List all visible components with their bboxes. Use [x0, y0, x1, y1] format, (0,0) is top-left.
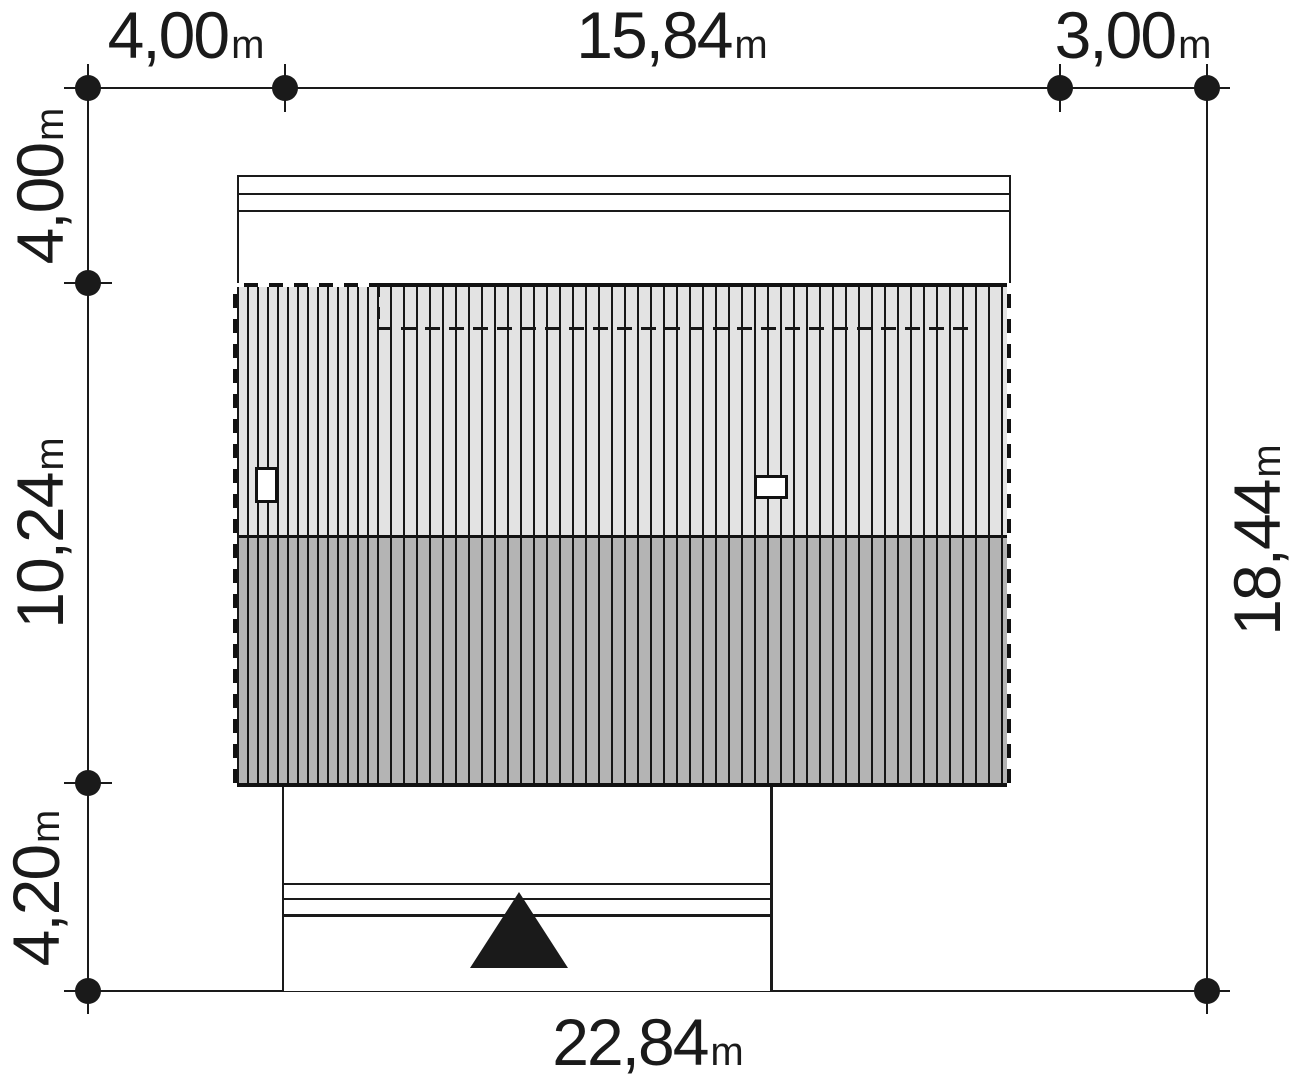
dim-value: 22,84	[552, 1005, 707, 1079]
dim-value: 4,00	[108, 0, 228, 72]
dim-unit: m	[24, 810, 68, 843]
dim-label-left-middle: 10,24m	[5, 383, 75, 683]
dim-label-top-right: 3,00m	[983, 0, 1283, 70]
dimension-dot	[1194, 75, 1220, 101]
dimension-dot	[75, 978, 101, 1004]
dim-unit: m	[28, 108, 72, 141]
dim-value: 3,00	[1055, 0, 1175, 72]
dim-unit: m	[28, 437, 72, 470]
plot-boundary-right	[1206, 64, 1208, 1014]
dim-unit: m	[1245, 444, 1289, 477]
dim-label-top-left: 4,00m	[36, 0, 336, 70]
hidden-wall-dashed-line-left	[233, 283, 237, 787]
dim-value: 4,00	[3, 144, 77, 264]
roof-hatch-left-panel	[237, 287, 377, 783]
dimension-dot	[75, 75, 101, 101]
dim-value: 10,24	[3, 474, 77, 629]
hidden-wall-dashed-line-right	[1007, 283, 1011, 787]
dim-value: 18,44	[1220, 481, 1294, 636]
dim-value: 15,84	[576, 0, 731, 72]
dim-label-left-bottom: 4,20m	[1, 738, 71, 1038]
dimension-dot	[1194, 978, 1220, 1004]
dim-unit: m	[710, 1030, 743, 1074]
building-terrace-strip	[237, 175, 1011, 283]
chimney-right	[754, 475, 788, 499]
entrance-arrow-triangle	[470, 892, 568, 968]
dim-label-left-top: 4,00m	[5, 36, 75, 336]
dim-unit: m	[1178, 23, 1211, 67]
terrace-line	[239, 193, 1009, 195]
roof-hatch-right-panel	[377, 287, 1007, 783]
driveway	[282, 787, 773, 991]
hidden-wall-dashed-line-horizontal	[377, 327, 968, 330]
dimension-tick	[284, 64, 286, 112]
driveway-line	[284, 883, 770, 885]
dim-value: 4,20	[0, 846, 73, 966]
terrace-line	[239, 210, 1009, 212]
dim-unit: m	[734, 23, 767, 67]
dim-label-right: 18,44m	[1222, 390, 1292, 690]
plot-boundary-left	[87, 64, 89, 1014]
building-roof	[233, 283, 1011, 787]
dim-unit: m	[231, 23, 264, 67]
chimney-left	[255, 467, 278, 503]
dim-label-bottom: 22,84m	[498, 1007, 798, 1077]
site-plan-drawing: 4,00m 15,84m 3,00m 4,00m 10,24m 4,20m 18…	[0, 0, 1296, 1080]
hidden-wall-dashed-line-top	[233, 283, 381, 287]
dimension-tick	[64, 782, 112, 784]
hidden-wall-dashed-line-vertical	[377, 285, 380, 329]
dim-label-top-middle: 15,84m	[522, 0, 822, 70]
